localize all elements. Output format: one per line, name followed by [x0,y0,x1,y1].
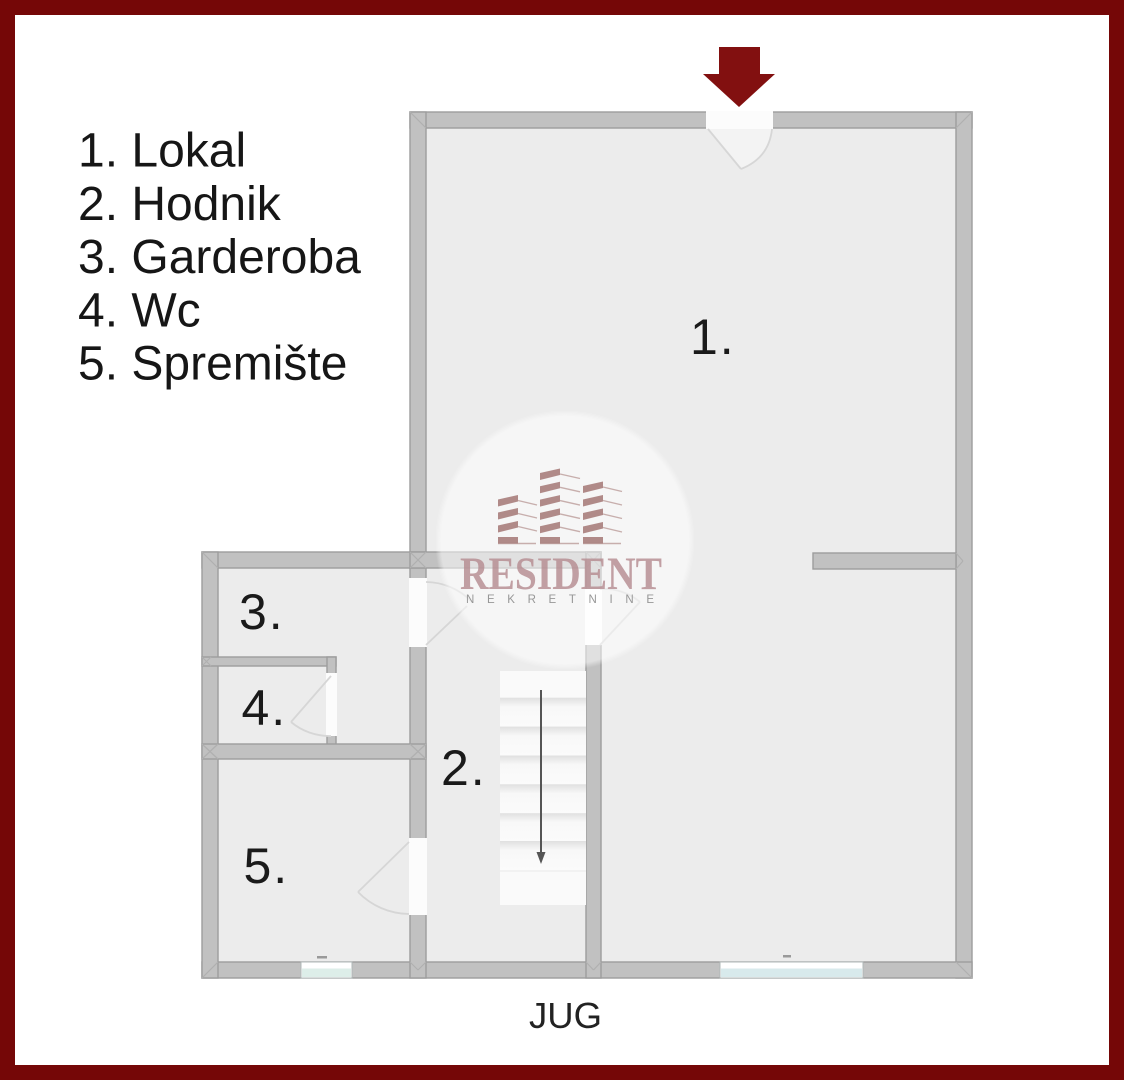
svg-text:4.: 4. [242,680,288,736]
svg-text:3.: 3. [239,584,285,640]
svg-text:5.: 5. [244,838,290,894]
svg-text:2.: 2. [441,740,487,796]
svg-text:3. Garderoba: 3. Garderoba [78,231,361,284]
svg-text:4. Wc: 4. Wc [78,284,201,337]
svg-text:1.: 1. [690,309,736,365]
svg-text:2. Hodnik: 2. Hodnik [78,178,282,231]
svg-text:JUG: JUG [529,995,602,1036]
svg-text:1. Lokal: 1. Lokal [78,125,246,178]
svg-text:5. Spremište: 5. Spremište [78,338,347,391]
svg-text:RESIDENT: RESIDENT [460,548,662,600]
